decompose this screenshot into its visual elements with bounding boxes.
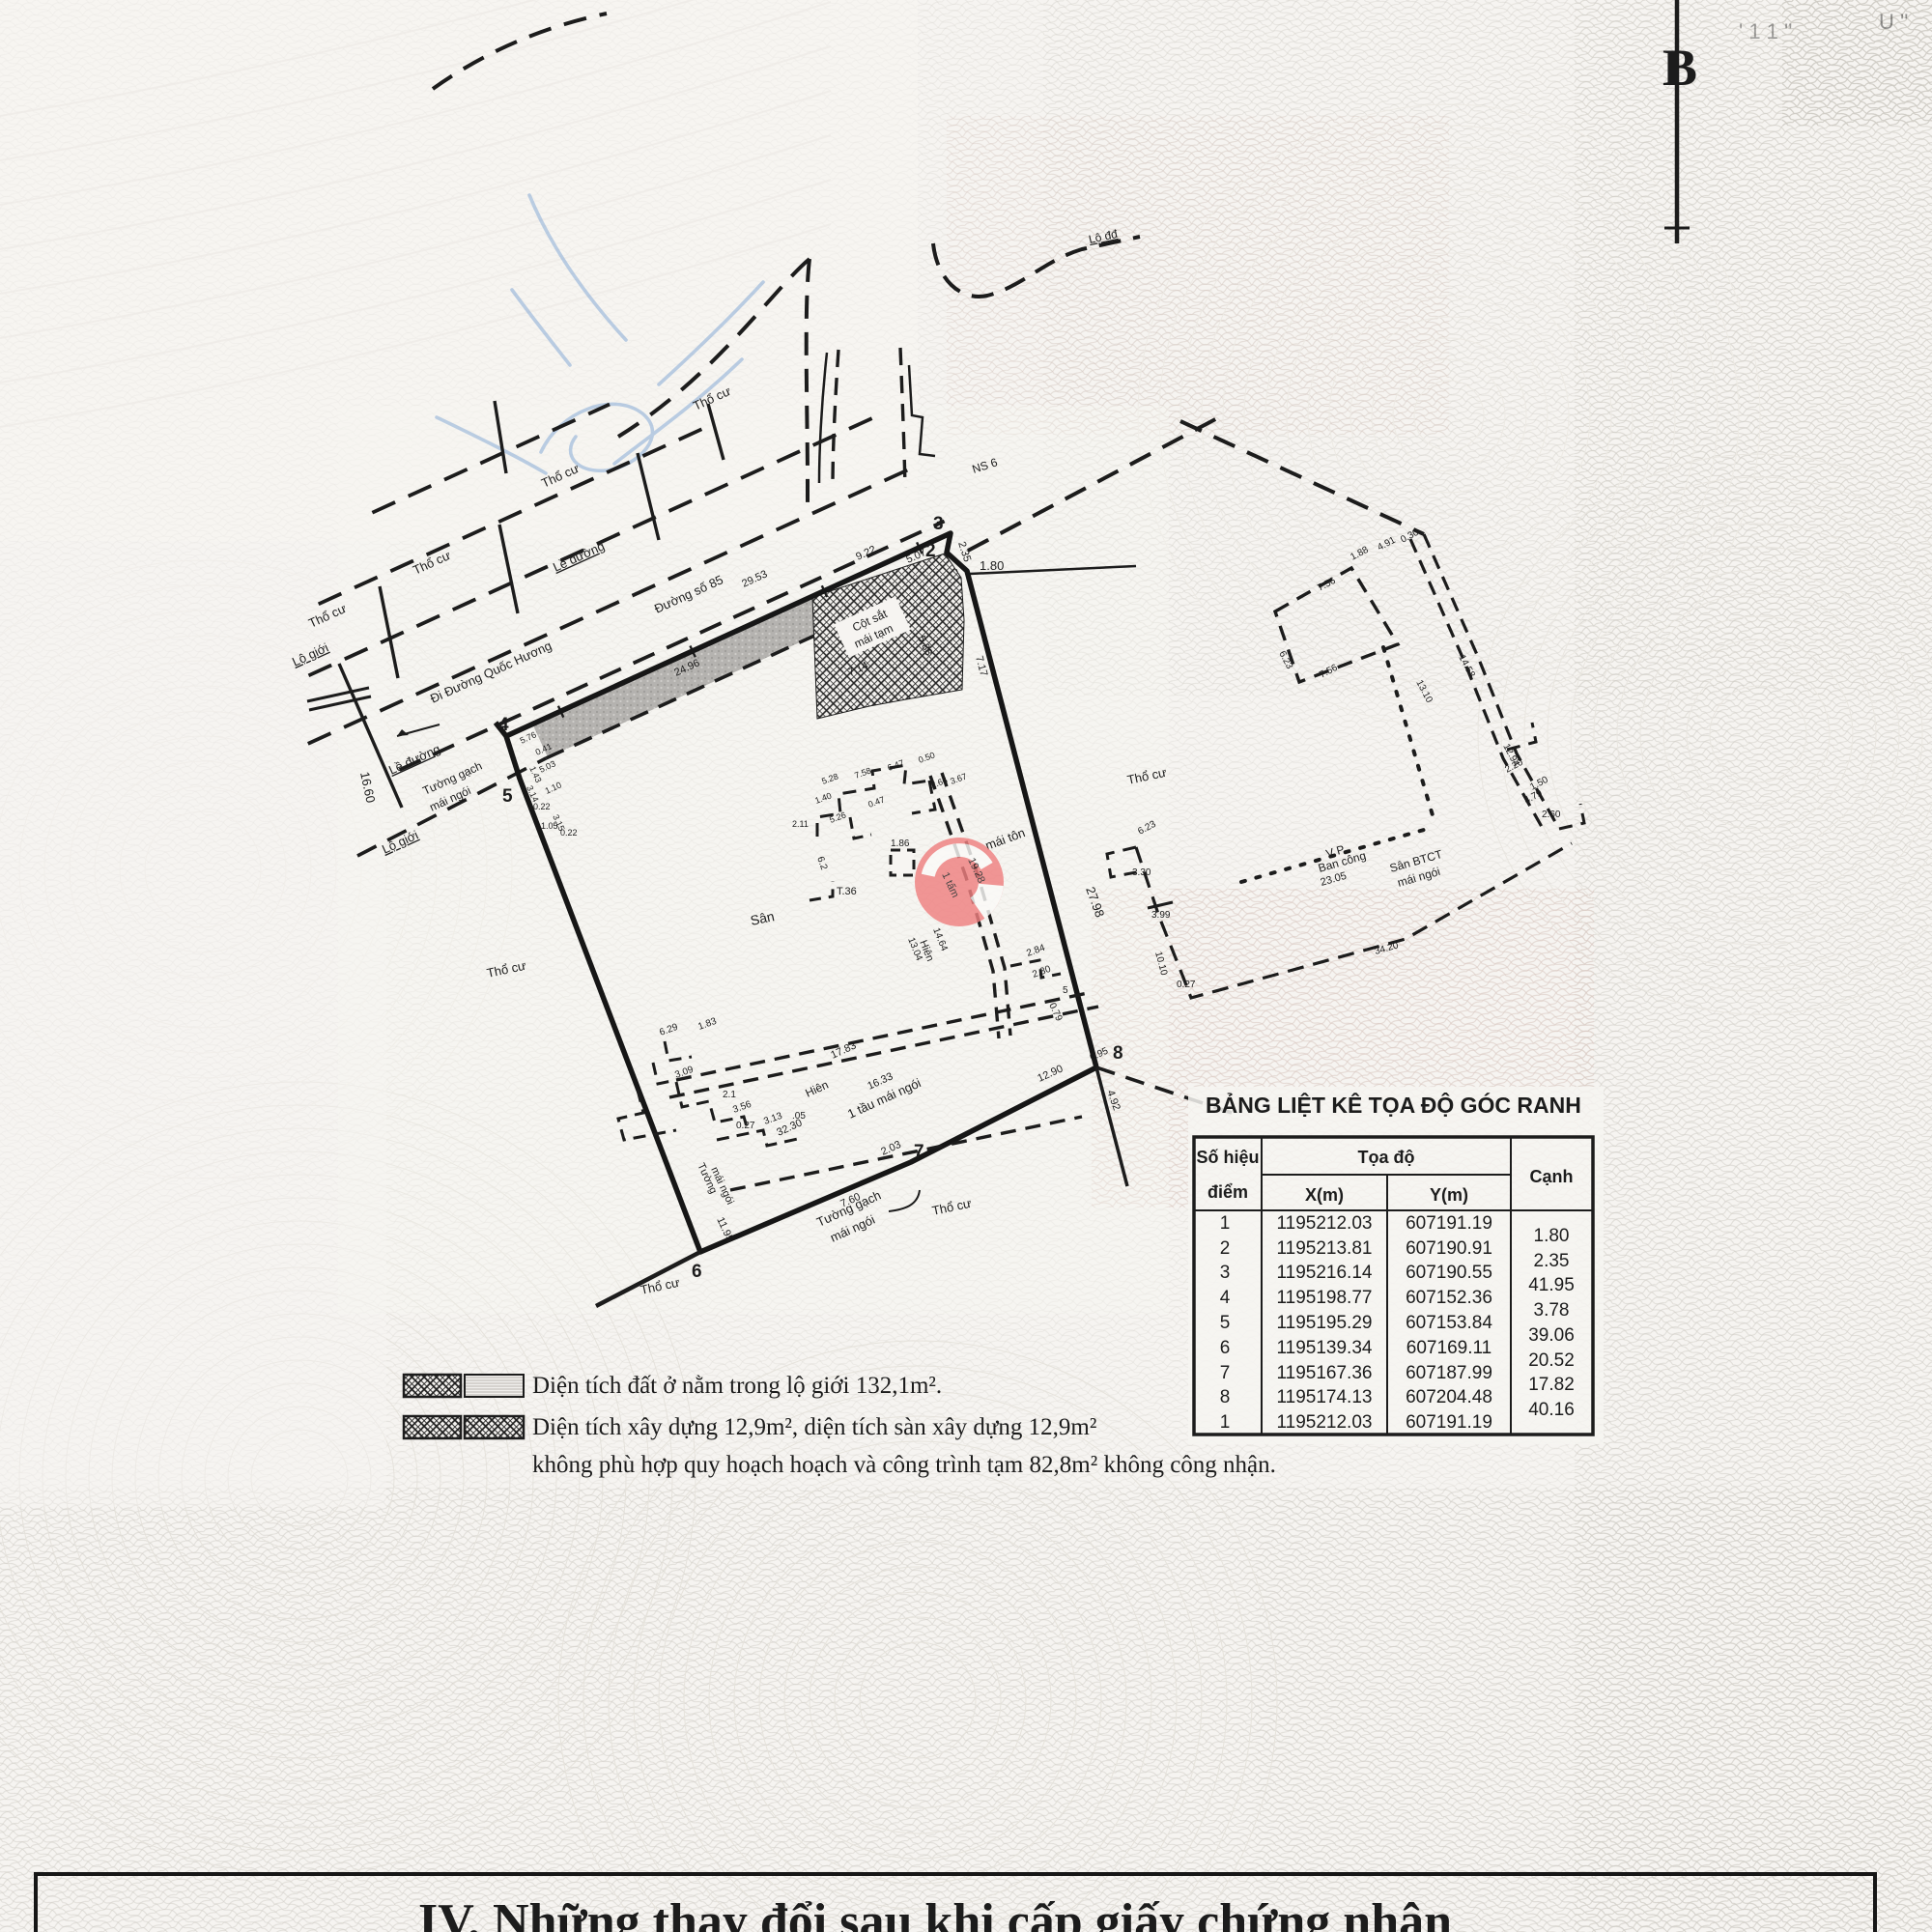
svg-text:607153.84: 607153.84 <box>1406 1313 1492 1333</box>
svg-text:5: 5 <box>1063 985 1068 996</box>
svg-text:1.05: 1.05 <box>541 821 558 831</box>
svg-text:3: 3 <box>933 514 944 534</box>
svg-text:Cạnh: Cạnh <box>1530 1167 1574 1186</box>
svg-text:20.52: 20.52 <box>1528 1350 1575 1371</box>
svg-text:2: 2 <box>925 541 936 561</box>
svg-text:0.22: 0.22 <box>560 828 578 838</box>
svg-text:607204.48: 607204.48 <box>1406 1387 1492 1407</box>
svg-text:5: 5 <box>502 786 513 807</box>
svg-text:1.86: 1.86 <box>891 838 910 849</box>
svg-text:2.11: 2.11 <box>792 819 809 829</box>
svg-text:.05: .05 <box>792 1111 806 1122</box>
svg-text:Diện tích đất ở nằm trong lộ g: Diện tích đất ở nằm trong lộ giới 132,1m… <box>532 1373 942 1399</box>
svg-text:0.27: 0.27 <box>1177 980 1196 990</box>
svg-text:Y(m): Y(m) <box>1430 1185 1468 1205</box>
svg-text:B: B <box>1662 39 1697 97</box>
svg-text:1.80: 1.80 <box>1534 1226 1570 1246</box>
svg-text:2.60: 2.60 <box>1542 810 1561 820</box>
svg-text:607190.91: 607190.91 <box>1406 1238 1492 1259</box>
svg-text:1195212.03: 1195212.03 <box>1277 1213 1373 1234</box>
svg-text:Diện tích xây dựng 12,9m², diệ: Diện tích xây dựng 12,9m², diện tích sàn… <box>532 1414 1096 1440</box>
svg-text:2.35: 2.35 <box>1534 1251 1570 1271</box>
svg-text:1195195.29: 1195195.29 <box>1277 1313 1373 1333</box>
svg-text:1.80: 1.80 <box>980 558 1004 573</box>
svg-text:không phù hợp quy hoạch hoạch: không phù hợp quy hoạch hoạch và công tr… <box>532 1452 1276 1478</box>
svg-text:40.16: 40.16 <box>1528 1400 1575 1420</box>
svg-text:1195216.14: 1195216.14 <box>1277 1263 1373 1283</box>
svg-text:607187.99: 607187.99 <box>1406 1363 1492 1383</box>
svg-text:607190.55: 607190.55 <box>1406 1263 1492 1283</box>
svg-text:T.36: T.36 <box>837 886 857 897</box>
svg-text:điểm: điểm <box>1207 1182 1248 1202</box>
svg-text:5: 5 <box>1220 1313 1231 1333</box>
svg-text:X(m): X(m) <box>1305 1185 1344 1205</box>
svg-text:3: 3 <box>1220 1263 1231 1283</box>
svg-text:IV. Những thay đổi sau khi cấp: IV. Những thay đổi sau khi cấp giấy chứn… <box>418 1894 1452 1932</box>
svg-text:0.27: 0.27 <box>736 1121 755 1131</box>
svg-text:BẢNG LIỆT KÊ TỌA ĐỘ GÓC RANH: BẢNG LIỆT KÊ TỌA ĐỘ GÓC RANH <box>1206 1091 1581 1118</box>
svg-text:607191.19: 607191.19 <box>1406 1412 1492 1433</box>
svg-text:3.99: 3.99 <box>1151 910 1171 921</box>
svg-text:8: 8 <box>1220 1387 1231 1407</box>
svg-text:7: 7 <box>1220 1363 1231 1383</box>
svg-text:1195212.03: 1195212.03 <box>1277 1412 1373 1433</box>
svg-text:4: 4 <box>498 715 509 735</box>
svg-text:41.95: 41.95 <box>1528 1275 1575 1295</box>
svg-text:2: 2 <box>1220 1238 1231 1259</box>
svg-text:607152.36: 607152.36 <box>1406 1288 1492 1308</box>
svg-text:607191.19: 607191.19 <box>1406 1213 1492 1234</box>
svg-text:U '': U '' <box>1879 10 1908 34</box>
svg-text:0.22: 0.22 <box>533 802 551 811</box>
svg-text:6: 6 <box>692 1262 702 1282</box>
svg-text:Tọa độ: Tọa độ <box>1358 1148 1415 1167</box>
svg-text:1: 1 <box>1220 1412 1231 1433</box>
svg-text:Số hiệu: Số hiệu <box>1196 1148 1259 1167</box>
svg-text:' 1 1 '': ' 1 1 '' <box>1739 19 1792 43</box>
svg-text:1195139.34: 1195139.34 <box>1277 1338 1373 1358</box>
svg-text:17.82: 17.82 <box>1528 1375 1575 1395</box>
svg-text:3.30: 3.30 <box>1132 867 1151 878</box>
svg-text:1195198.77: 1195198.77 <box>1277 1288 1373 1308</box>
svg-text:1: 1 <box>1220 1213 1231 1234</box>
svg-text:39.06: 39.06 <box>1528 1325 1575 1346</box>
svg-text:607169.11: 607169.11 <box>1406 1338 1492 1358</box>
svg-text:3.78: 3.78 <box>1534 1300 1570 1321</box>
svg-text:4: 4 <box>1220 1288 1231 1308</box>
svg-text:1195167.36: 1195167.36 <box>1277 1363 1373 1383</box>
svg-text:1195213.81: 1195213.81 <box>1277 1238 1373 1259</box>
svg-text:1195174.13: 1195174.13 <box>1277 1387 1373 1407</box>
svg-text:2.1: 2.1 <box>723 1090 736 1100</box>
svg-text:8: 8 <box>1113 1043 1123 1064</box>
svg-text:6: 6 <box>1220 1338 1231 1358</box>
